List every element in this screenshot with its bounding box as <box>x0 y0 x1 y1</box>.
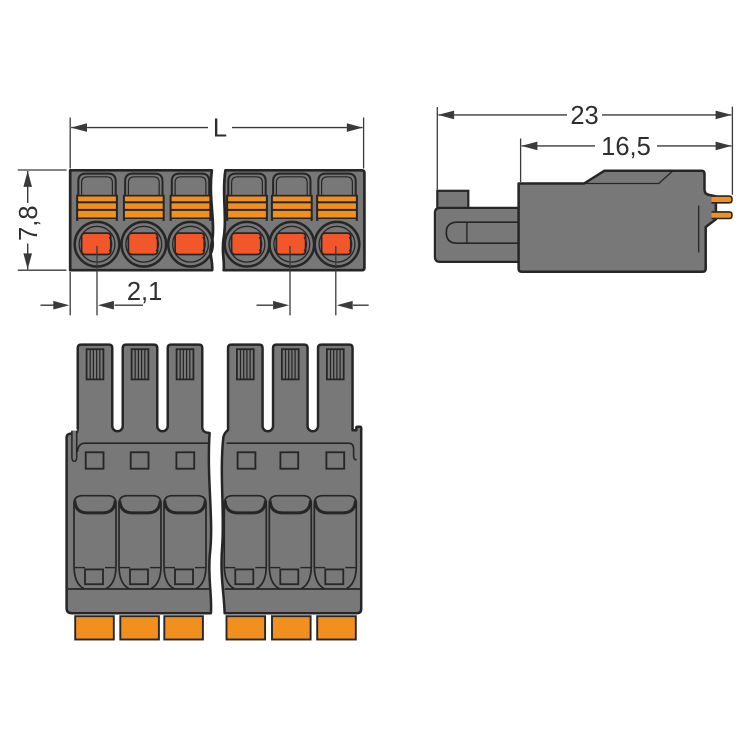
svg-text:23: 23 <box>570 102 598 130</box>
svg-text:16,5: 16,5 <box>601 133 651 161</box>
svg-text:7,8: 7,8 <box>15 205 43 240</box>
svg-text:L: L <box>213 115 227 143</box>
svg-text:2,1: 2,1 <box>127 278 162 306</box>
